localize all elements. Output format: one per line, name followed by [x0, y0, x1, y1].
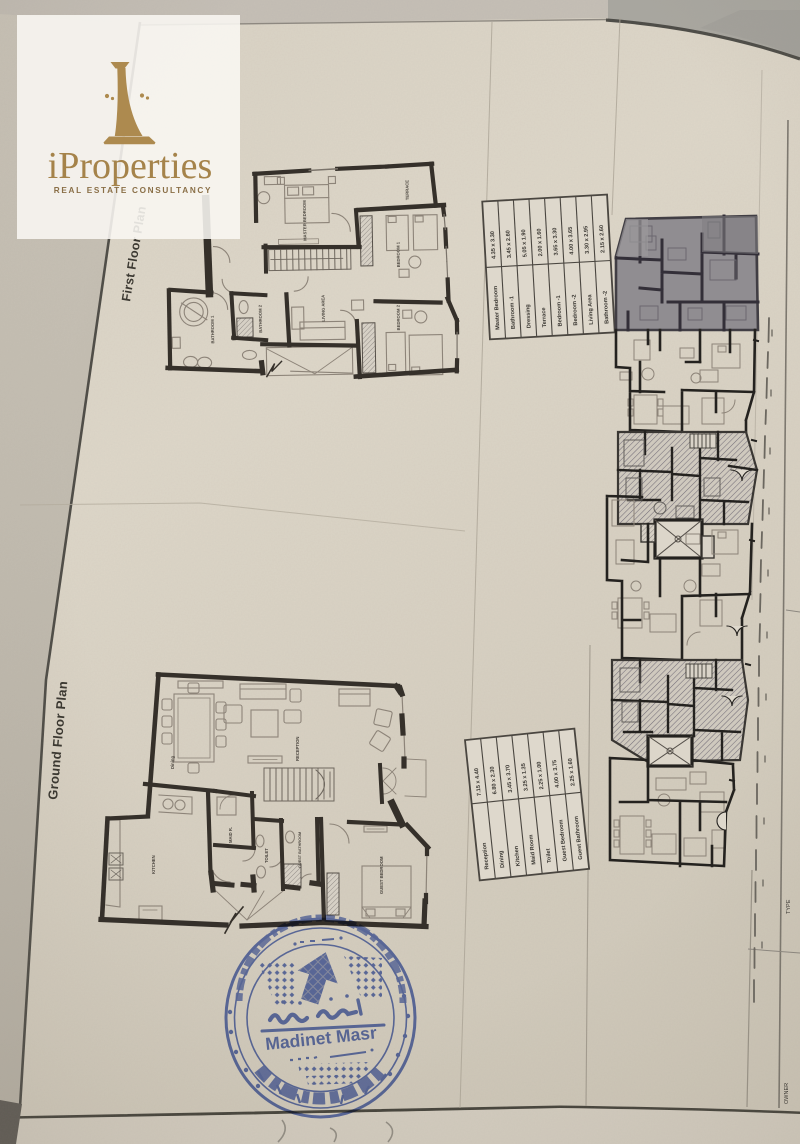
svg-text:Dining: Dining [170, 756, 175, 769]
svg-text:KITCHEN: KITCHEN [151, 855, 156, 874]
svg-text:TERRACE: TERRACE [404, 180, 409, 201]
svg-text:TOILET: TOILET [264, 848, 269, 863]
svg-text:RECEPTION: RECEPTION [295, 737, 300, 761]
svg-text:BEDROOM 1: BEDROOM 1 [395, 241, 400, 267]
svg-text:TYPE: TYPE [786, 899, 792, 914]
svg-text:Terrace: Terrace [541, 307, 548, 327]
svg-text:GUEST BATHROOM: GUEST BATHROOM [298, 832, 302, 868]
svg-text:BATHROOM 2: BATHROOM 2 [258, 304, 263, 333]
svg-text:LIVING AREA: LIVING AREA [320, 295, 325, 322]
svg-text:OWNER: OWNER [784, 1083, 790, 1104]
svg-text:GUEST BEDROOM: GUEST BEDROOM [379, 856, 384, 894]
svg-text:BEDROOM 2: BEDROOM 2 [396, 304, 401, 330]
svg-text:iProperties: iProperties [48, 145, 213, 187]
svg-text:MASTER BEDROOM: MASTER BEDROOM [302, 200, 308, 241]
svg-text:REAL ESTATE CONSULTANCY: REAL ESTATE CONSULTANCY [54, 186, 212, 195]
svg-text:BATHROOM 1: BATHROOM 1 [210, 315, 215, 344]
svg-text:MAID R.: MAID R. [228, 827, 233, 843]
